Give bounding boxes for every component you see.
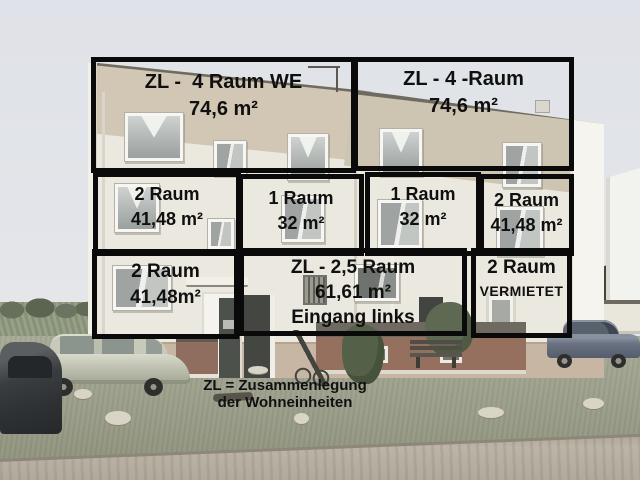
unit-label: 2 Raum — [98, 182, 236, 207]
unit-label: ZL - 4 Raum WE — [96, 69, 351, 96]
car-wheel — [611, 354, 626, 368]
unit-area: 32 m² — [370, 207, 476, 232]
unit-label: 1 Raum — [243, 186, 359, 211]
unit-label: 1 Raum — [370, 182, 476, 207]
unit-label: ZL - 2,5 Raum — [244, 255, 462, 280]
stone — [583, 398, 604, 409]
stone — [74, 389, 92, 399]
unit-box-middle-4: 2 Raum 41,48 m² — [479, 174, 574, 256]
stone — [294, 413, 309, 424]
unit-label: ZL - 4 -Raum — [358, 66, 569, 93]
unit-note: Eingang links — [244, 305, 462, 330]
unit-label: 2 Raum — [97, 259, 234, 285]
stone — [478, 407, 504, 418]
annotated-building-photo: ZL - 4 Raum WE 74,6 m² ZL - 4 -Raum 74,6… — [0, 0, 640, 480]
legend-line-1: ZL = Zusammenlegung — [160, 377, 410, 394]
unit-box-middle-1: 2 Raum 41,48 m² — [93, 172, 241, 256]
unit-box-middle-2: 1 Raum 32 m² — [238, 174, 364, 256]
unit-area: 41,48m² — [97, 285, 234, 311]
unit-box-bottom-2: ZL - 2,5 Raum 61,61 m² Eingang links — [239, 248, 467, 336]
unit-area: 61,61 m² — [244, 280, 462, 305]
legend: ZL = Zusammenlegung der Wohneinheiten — [160, 377, 410, 411]
car-wheel — [557, 354, 572, 368]
stone — [105, 411, 131, 425]
unit-box-bottom-1: 2 Raum 41,48m² — [92, 249, 239, 339]
stone — [248, 366, 268, 374]
unit-area: 41,48 m² — [484, 213, 569, 238]
unit-area: 74,6 m² — [96, 96, 351, 123]
unit-label: 2 Raum — [476, 255, 567, 281]
unit-box-top-left: ZL - 4 Raum WE 74,6 m² — [91, 57, 356, 173]
dark-car-foreground — [0, 342, 62, 434]
park-bench — [410, 340, 462, 368]
unit-area: 74,6 m² — [358, 93, 569, 120]
unit-area: 41,48 m² — [98, 207, 236, 232]
unit-box-bottom-3: 2 Raum VERMIETET — [471, 248, 572, 338]
unit-box-middle-3: 1 Raum 32 m² — [365, 172, 481, 256]
left-bushes — [0, 294, 96, 330]
legend-line-2: der Wohneinheiten — [160, 394, 410, 411]
unit-area: 32 m² — [243, 211, 359, 236]
unit-label: 2 Raum — [484, 188, 569, 213]
unit-status: VERMIETET — [476, 281, 567, 301]
unit-box-top-right: ZL - 4 -Raum 74,6 m² — [353, 57, 574, 171]
